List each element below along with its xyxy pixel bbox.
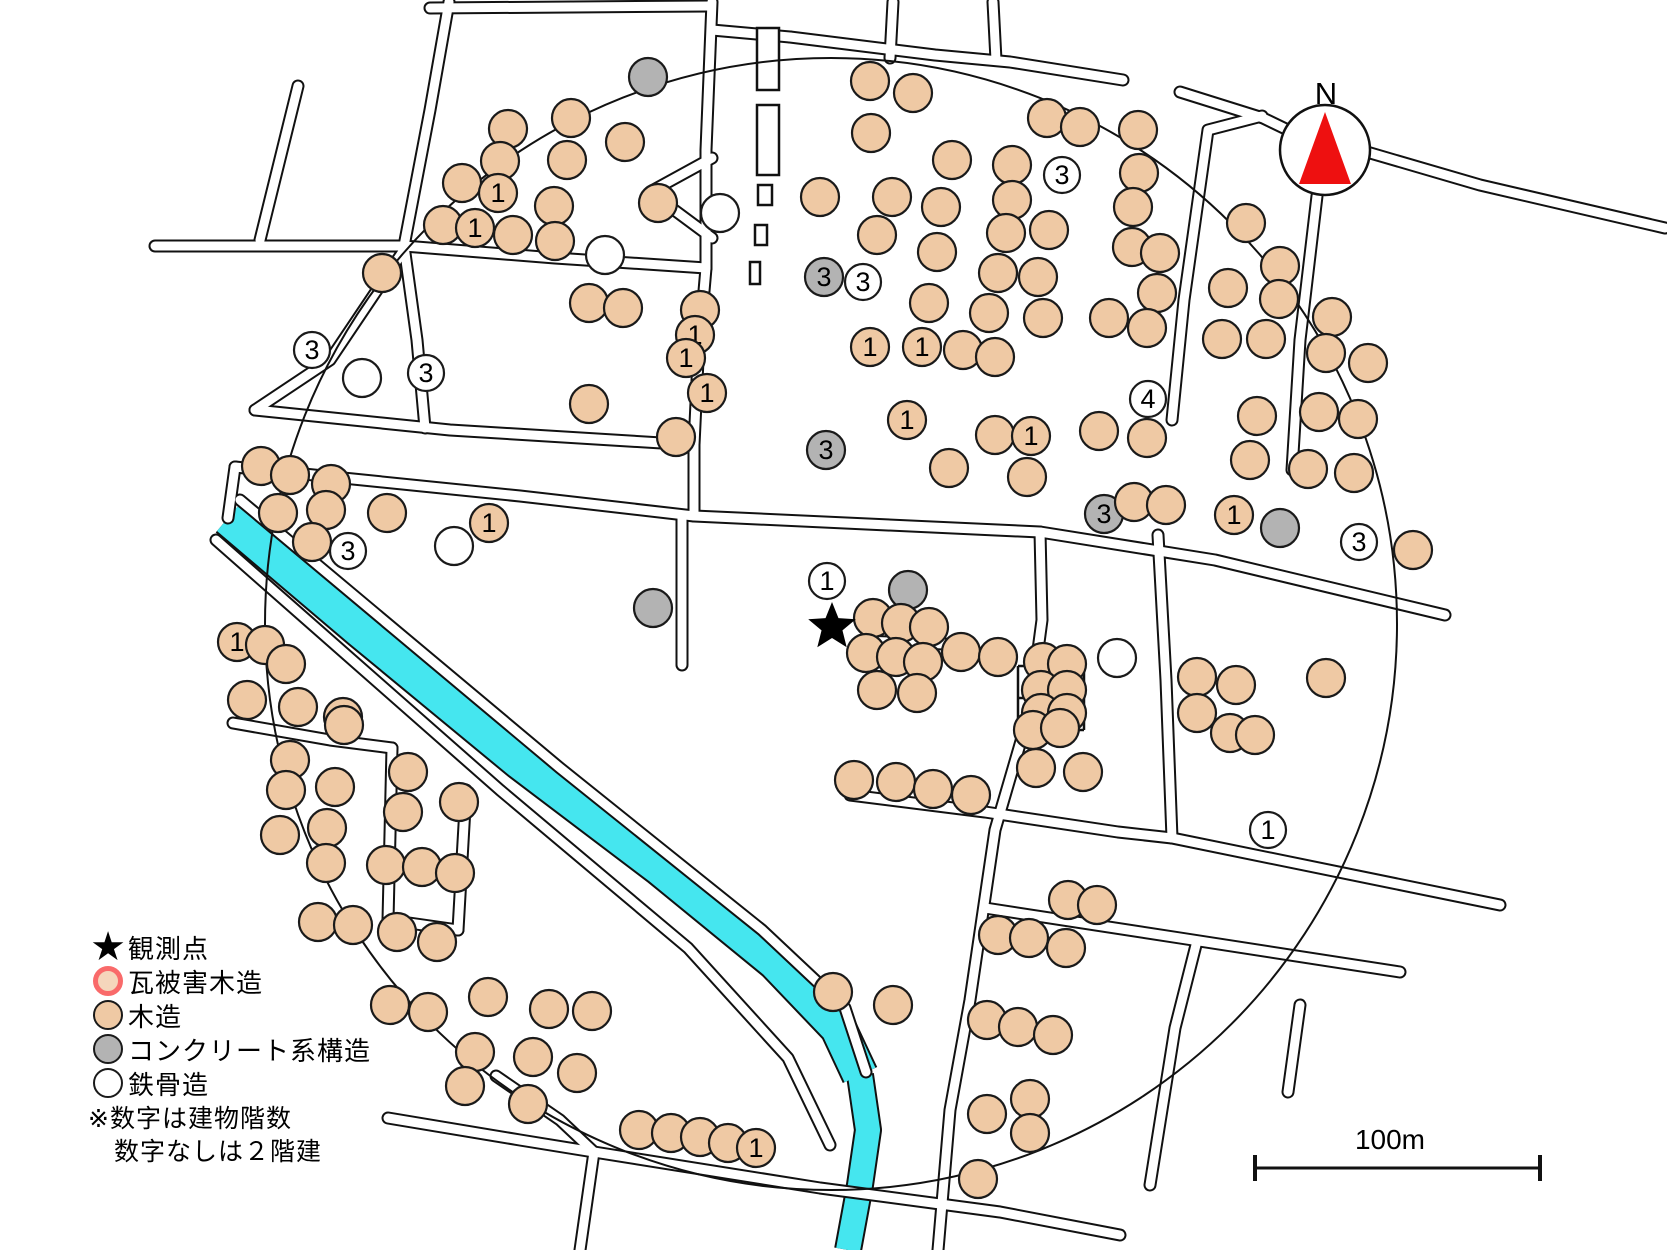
legend-item-observation-point: ★ 観測点 (88, 930, 371, 964)
building-dot-wood (536, 222, 574, 260)
building-dot-wood (999, 1008, 1037, 1046)
building-dot-wood (1203, 320, 1241, 358)
legend-item-wood: 木造 (88, 998, 371, 1032)
floor-number-label: 1 (1260, 815, 1275, 845)
legend-item-tile-damaged-wood: 瓦被害木造 (88, 964, 371, 998)
road (993, 2, 996, 60)
building-dot-wood (259, 494, 297, 532)
floor-count-label: 3 (818, 435, 833, 465)
building-dot-wood (573, 992, 611, 1030)
building-dot-wood (968, 1095, 1006, 1133)
building-dot-steel (1098, 639, 1136, 677)
building-dot-wood (552, 99, 590, 137)
building-dot-wood (1030, 211, 1068, 249)
building-dot-wood (1307, 659, 1345, 697)
lane-slot (758, 185, 772, 205)
building-dot-wood (409, 993, 447, 1031)
floor-count-label: 1 (678, 343, 693, 373)
building-dot-wood (1313, 298, 1351, 336)
building-dot-wood (922, 188, 960, 226)
building-dot-wood (930, 449, 968, 487)
lane-slot (757, 105, 779, 175)
building-dot-wood (384, 793, 422, 831)
floor-number-label: 3 (304, 335, 319, 365)
legend-note-floors: ※数字は建物階数 (88, 1100, 371, 1133)
floor-number-label: 1 (819, 566, 834, 596)
building-dot-wood (363, 254, 401, 292)
building-dot-wood (267, 771, 305, 809)
building-dot-wood (835, 761, 873, 799)
floor-number-label: 3 (418, 358, 433, 388)
building-dot-wood (403, 848, 441, 886)
building-dot-steel (586, 236, 624, 274)
north-label: N (1312, 76, 1340, 112)
building-dot-wood (469, 978, 507, 1016)
building-dot-wood (1090, 299, 1128, 337)
building-dot-wood (1178, 658, 1216, 696)
floor-count-label: 1 (699, 378, 714, 408)
legend-label: 観測点 (128, 929, 209, 966)
building-dot-wood (368, 494, 406, 532)
steel-building-icon (88, 1068, 128, 1098)
legend-item-steel: 鉄骨造 (88, 1066, 371, 1100)
lane-slot (755, 225, 767, 245)
floor-number-label: 3 (1351, 527, 1366, 557)
building-dot-wood (987, 214, 1025, 252)
road (890, 2, 893, 58)
floor-count-label: 3 (816, 262, 831, 292)
scale-bar-label: 100m (1320, 1124, 1460, 1156)
legend-label: 木造 (128, 997, 182, 1034)
building-dot-wood (1289, 450, 1327, 488)
building-dot-wood (1119, 111, 1157, 149)
floor-count-label: 1 (914, 332, 929, 362)
building-dot-wood (910, 284, 948, 322)
road (430, 6, 710, 8)
building-dot-wood (389, 753, 427, 791)
building-dot-wood (814, 973, 852, 1011)
floor-count-label: 1 (481, 508, 496, 538)
floor-count-label: 1 (490, 178, 505, 208)
building-dot-concrete (629, 58, 667, 96)
building-dot-wood (443, 164, 481, 202)
floor-number-label: 3 (1054, 160, 1069, 190)
floor-count-label: 1 (1226, 500, 1241, 530)
building-dot-wood (858, 671, 896, 709)
building-dot-wood (1128, 419, 1166, 457)
building-dot-wood (1300, 393, 1338, 431)
lane-slot (750, 262, 760, 284)
building-dot-wood (993, 181, 1031, 219)
building-dot-concrete (889, 571, 927, 609)
concrete-building-icon (88, 1034, 128, 1064)
building-dot-wood (1064, 753, 1102, 791)
building-dot-wood (604, 289, 642, 327)
building-dot-wood (1138, 274, 1176, 312)
building-dot-wood (271, 456, 309, 494)
building-dot-wood (1078, 886, 1116, 924)
floor-count-label: 1 (899, 405, 914, 435)
building-dot-wood (894, 74, 932, 112)
building-dot-wood (993, 146, 1031, 184)
building-dot-steel (343, 359, 381, 397)
floor-number-label: 3 (855, 267, 870, 297)
building-dot-wood (325, 706, 363, 744)
building-dot-wood (1227, 204, 1265, 242)
building-dot-wood (440, 783, 478, 821)
building-dot-wood (979, 254, 1017, 292)
legend-note-default-floors: 数字なしは２階建 (88, 1133, 371, 1166)
building-dot-wood (952, 776, 990, 814)
building-dot-wood (548, 141, 586, 179)
building-dot-wood (979, 638, 1017, 676)
building-dot-wood (942, 633, 980, 671)
building-dot-wood (279, 688, 317, 726)
building-dot-wood (874, 986, 912, 1024)
building-dot-wood (1028, 99, 1066, 137)
building-dot-wood (1128, 309, 1166, 347)
building-dot-wood (959, 1160, 997, 1198)
tile-damaged-wood-icon (88, 966, 128, 996)
legend-label: 瓦被害木造 (128, 963, 263, 1000)
legend-label: 鉄骨造 (128, 1065, 209, 1102)
floor-count-label: 1 (1023, 421, 1038, 451)
building-dot-wood (509, 1085, 547, 1123)
building-dot-concrete (634, 589, 672, 627)
survey-map-page: 1111311111311311333334131 N 100m ★ 観測点 瓦… (0, 0, 1667, 1250)
building-dot-wood (873, 178, 911, 216)
building-dot-wood (1147, 486, 1185, 524)
building-dot-wood (1335, 454, 1373, 492)
building-dot-wood (530, 990, 568, 1028)
building-dot-steel (435, 527, 473, 565)
floor-count-label: 1 (467, 213, 482, 243)
floor-number-label: 4 (1140, 384, 1155, 414)
legend-label: コンクリート系構造 (128, 1031, 371, 1068)
building-dot-wood (851, 62, 889, 100)
star-icon: ★ (88, 932, 128, 962)
building-dot-wood (910, 608, 948, 646)
building-dot-wood (606, 123, 644, 161)
building-dot-wood (918, 233, 956, 271)
floor-count-label: 1 (748, 1133, 763, 1163)
building-dot-wood (1011, 1080, 1049, 1118)
building-dot-wood (898, 674, 936, 712)
building-dot-wood (446, 1067, 484, 1105)
floor-count-label: 3 (1096, 499, 1111, 529)
building-dot-concrete (1261, 509, 1299, 547)
building-dot-wood (1307, 334, 1345, 372)
building-dot-wood (877, 763, 915, 801)
building-dot-wood (1019, 258, 1057, 296)
building-dot-wood (267, 645, 305, 683)
building-dot-wood (1024, 299, 1062, 337)
building-dot-wood (316, 768, 354, 806)
building-dot-steel (701, 194, 739, 232)
building-dot-wood (436, 854, 474, 892)
building-dot-wood (1080, 412, 1118, 450)
building-dot-wood (308, 809, 346, 847)
building-dot-wood (1260, 280, 1298, 318)
building-dot-wood (852, 114, 890, 152)
legend-item-concrete: コンクリート系構造 (88, 1032, 371, 1066)
building-dot-wood (1010, 919, 1048, 957)
building-dot-wood (558, 1054, 596, 1092)
building-dot-wood (1178, 694, 1216, 732)
building-dot-wood (1209, 269, 1247, 307)
building-dot-wood (261, 816, 299, 854)
building-dot-wood (307, 844, 345, 882)
lane-slot (757, 28, 779, 90)
wood-building-icon (88, 1000, 128, 1030)
building-dot-wood (976, 416, 1014, 454)
map-legend: ★ 観測点 瓦被害木造 木造 コンクリート系構造 鉄骨造 ※数字は建物階数 数字… (88, 930, 371, 1166)
building-dot-wood (1034, 1016, 1072, 1054)
building-dot-wood (228, 681, 266, 719)
building-dot-wood (1114, 188, 1152, 226)
building-dot-wood (1349, 344, 1387, 382)
building-dot-wood (1061, 108, 1099, 146)
building-dot-wood (1008, 458, 1046, 496)
building-dot-wood (535, 187, 573, 225)
building-dot-wood (1047, 929, 1085, 967)
building-dot-wood (1394, 531, 1432, 569)
building-dot-wood (970, 294, 1008, 332)
building-dot-wood (1120, 154, 1158, 192)
building-dot-wood (1231, 441, 1269, 479)
building-dot-wood (494, 216, 532, 254)
building-dot-wood (1238, 397, 1276, 435)
building-dot-wood (1041, 709, 1079, 747)
building-dot-wood (1217, 666, 1255, 704)
building-dot-wood (976, 338, 1014, 376)
building-dot-wood (456, 1033, 494, 1071)
floor-count-label: 1 (229, 627, 244, 657)
building-dot-wood (1339, 400, 1377, 438)
building-dot-wood (1247, 320, 1285, 358)
floor-count-label: 1 (862, 332, 877, 362)
building-dot-wood (378, 913, 416, 951)
building-dot-wood (367, 846, 405, 884)
building-dot-wood (1011, 1114, 1049, 1152)
building-dot-wood (570, 385, 608, 423)
building-dot-wood (570, 284, 608, 322)
building-dot-wood (1017, 749, 1055, 787)
building-dot-wood (639, 184, 677, 222)
building-dot-wood (371, 986, 409, 1024)
building-dot-wood (1236, 716, 1274, 754)
floor-number-label: 3 (340, 536, 355, 566)
building-dot-wood (514, 1038, 552, 1076)
building-dot-wood (657, 418, 695, 456)
building-dot-wood (914, 770, 952, 808)
building-dot-wood (858, 216, 896, 254)
building-dot-wood (1141, 234, 1179, 272)
building-dot-wood (293, 523, 331, 561)
building-dot-wood (801, 178, 839, 216)
building-dot-wood (418, 923, 456, 961)
building-dot-wood (933, 141, 971, 179)
